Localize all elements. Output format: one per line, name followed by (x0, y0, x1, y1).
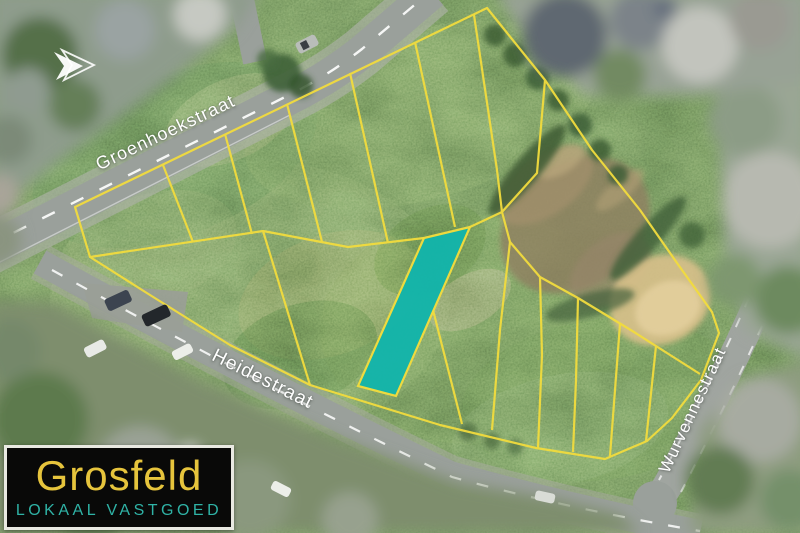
brand-name: Grosfeld (36, 455, 203, 497)
arrow-icon (40, 36, 130, 111)
aerial-photo: Groenhoekstraat Heidestraat Wurvennestra… (0, 0, 800, 533)
brand-tagline: LOKAAL VASTGOED (16, 502, 222, 520)
brand-logo: Grosfeld LOKAAL VASTGOED (4, 445, 234, 530)
